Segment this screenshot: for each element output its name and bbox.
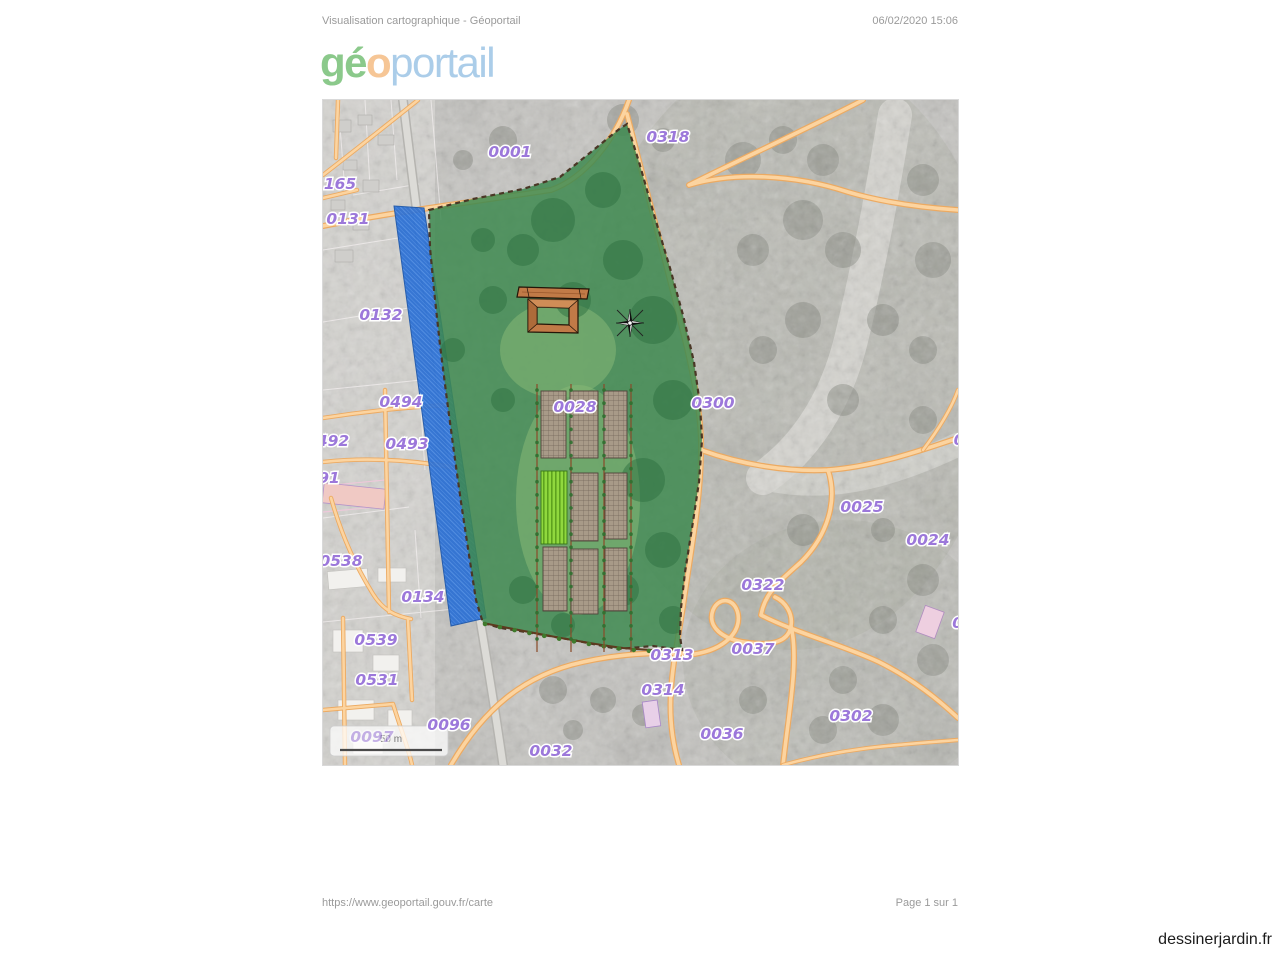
parcel-label-00: 00 — [952, 614, 958, 632]
parcel-label-0318: 0318 — [646, 128, 689, 146]
footer-url: https://www.geoportail.gouv.fr/carte — [322, 897, 493, 909]
header-title: Visualisation cartographique - Géoportai… — [322, 15, 521, 27]
parcel-label-0302: 0302 — [829, 707, 872, 725]
parcel-label-0097: 0097 — [350, 728, 393, 746]
parcel-label-0025: 0025 — [840, 498, 883, 516]
parcel-label-0024: 0024 — [906, 531, 949, 549]
parcel-label-0132: 0132 — [359, 306, 402, 324]
parcel-label-0313: 0313 — [650, 646, 693, 664]
watermark-site-label: dessinerjardin.fr — [1158, 931, 1272, 949]
compass-rose-icon — [616, 309, 644, 337]
footer-page-number: Page 1 sur 1 — [896, 897, 958, 909]
logo-part-o: o — [366, 39, 390, 86]
parcel-label-0314: 0314 — [641, 681, 684, 699]
map-view: 50 m 00010318165013101320494492049391053… — [323, 100, 958, 765]
parcel-label-0: 0 — [954, 431, 958, 449]
header-datetime: 06/02/2020 15:06 — [872, 15, 958, 27]
parcel-label-0037: 0037 — [731, 640, 774, 658]
parcel-label-0096: 0096 — [427, 716, 470, 734]
logo-part-portail: portail — [390, 39, 494, 86]
parcel-label-0131: 0131 — [326, 210, 369, 228]
parcel-label-0001: 0001 — [488, 143, 531, 161]
parcel-label-0531: 0531 — [355, 671, 398, 689]
parcel-label-0032: 0032 — [529, 742, 572, 760]
parcel-label-0134: 0134 — [401, 588, 444, 606]
parcel-label-0494: 0494 — [379, 393, 422, 411]
parcel-label-165: 165 — [324, 175, 356, 193]
parcel-label-0028: 0028 — [553, 398, 596, 416]
parcel-label-0538: 0538 — [323, 552, 363, 570]
parcel-label-91: 91 — [323, 469, 340, 487]
parcel-label-0322: 0322 — [741, 576, 784, 594]
parcel-label-0539: 0539 — [354, 631, 397, 649]
logo-part-ge: gé — [320, 39, 366, 86]
parcel-label-0300: 0300 — [691, 394, 734, 412]
geoportail-logo: géoportail — [320, 42, 494, 84]
parcel-label-0036: 0036 — [700, 725, 743, 743]
parcel-label-492: 492 — [323, 432, 349, 450]
planted-bed-green — [541, 471, 567, 544]
parcel-label-0493: 0493 — [385, 435, 428, 453]
